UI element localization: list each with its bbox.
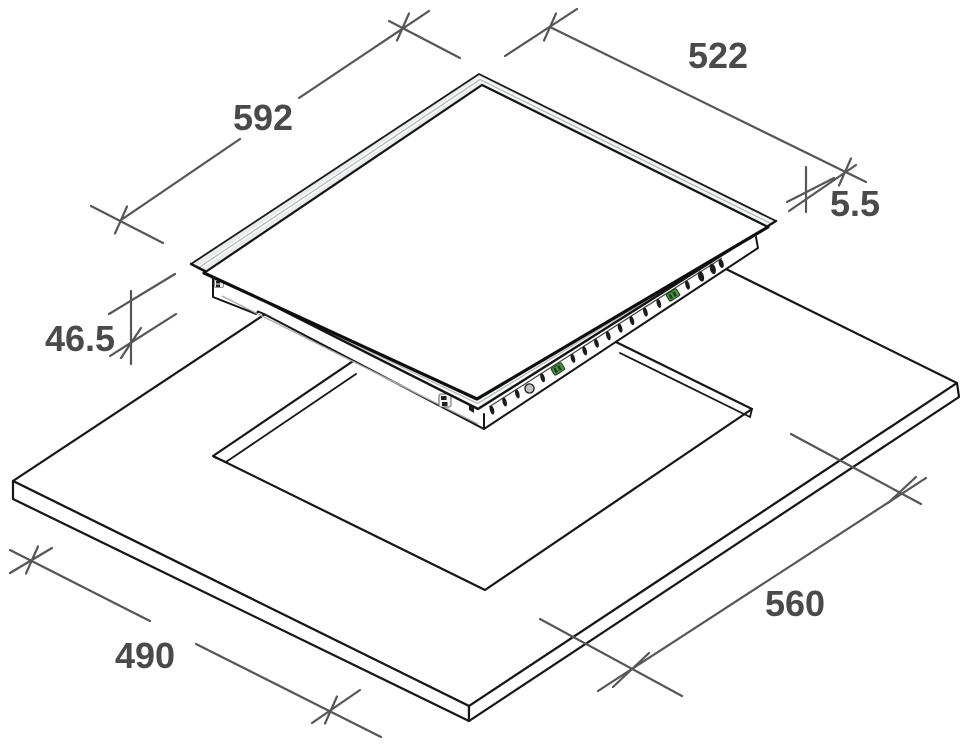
svg-text:5.5: 5.5 <box>830 183 880 224</box>
svg-text:592: 592 <box>233 97 293 138</box>
svg-text:522: 522 <box>688 35 748 76</box>
svg-text:490: 490 <box>115 635 175 676</box>
svg-text:46.5: 46.5 <box>45 318 115 359</box>
svg-text:560: 560 <box>765 583 825 624</box>
